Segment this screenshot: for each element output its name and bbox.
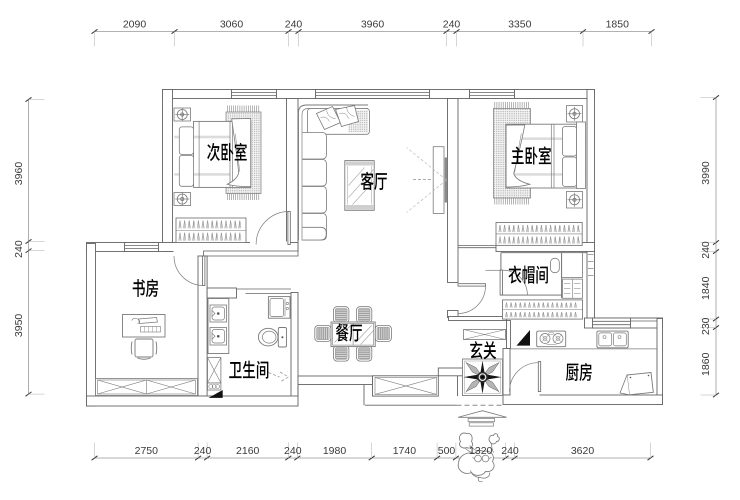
svg-text:240: 240 [194, 445, 212, 457]
svg-text:2750: 2750 [135, 445, 159, 457]
svg-text:240: 240 [501, 445, 519, 457]
svg-text:3950: 3950 [13, 314, 25, 338]
svg-text:3620: 3620 [571, 445, 595, 457]
svg-text:3060: 3060 [220, 19, 244, 31]
svg-text:1320: 1320 [469, 445, 493, 457]
svg-text:230: 230 [700, 317, 712, 335]
svg-text:3960: 3960 [361, 19, 385, 31]
svg-text:3350: 3350 [508, 19, 532, 31]
svg-text:1840: 1840 [700, 276, 712, 300]
svg-text:2160: 2160 [236, 445, 260, 457]
svg-text:1860: 1860 [700, 352, 712, 376]
svg-text:500: 500 [438, 445, 456, 457]
svg-text:3990: 3990 [700, 161, 712, 185]
svg-text:2090: 2090 [123, 19, 147, 31]
svg-text:240: 240 [285, 19, 303, 31]
svg-text:240: 240 [443, 19, 461, 31]
svg-text:3960: 3960 [13, 162, 25, 186]
svg-text:1740: 1740 [393, 445, 417, 457]
svg-text:1850: 1850 [606, 19, 630, 31]
svg-text:240: 240 [13, 240, 25, 258]
svg-text:240: 240 [284, 445, 302, 457]
svg-text:1980: 1980 [323, 445, 347, 457]
svg-text:240: 240 [700, 241, 712, 259]
